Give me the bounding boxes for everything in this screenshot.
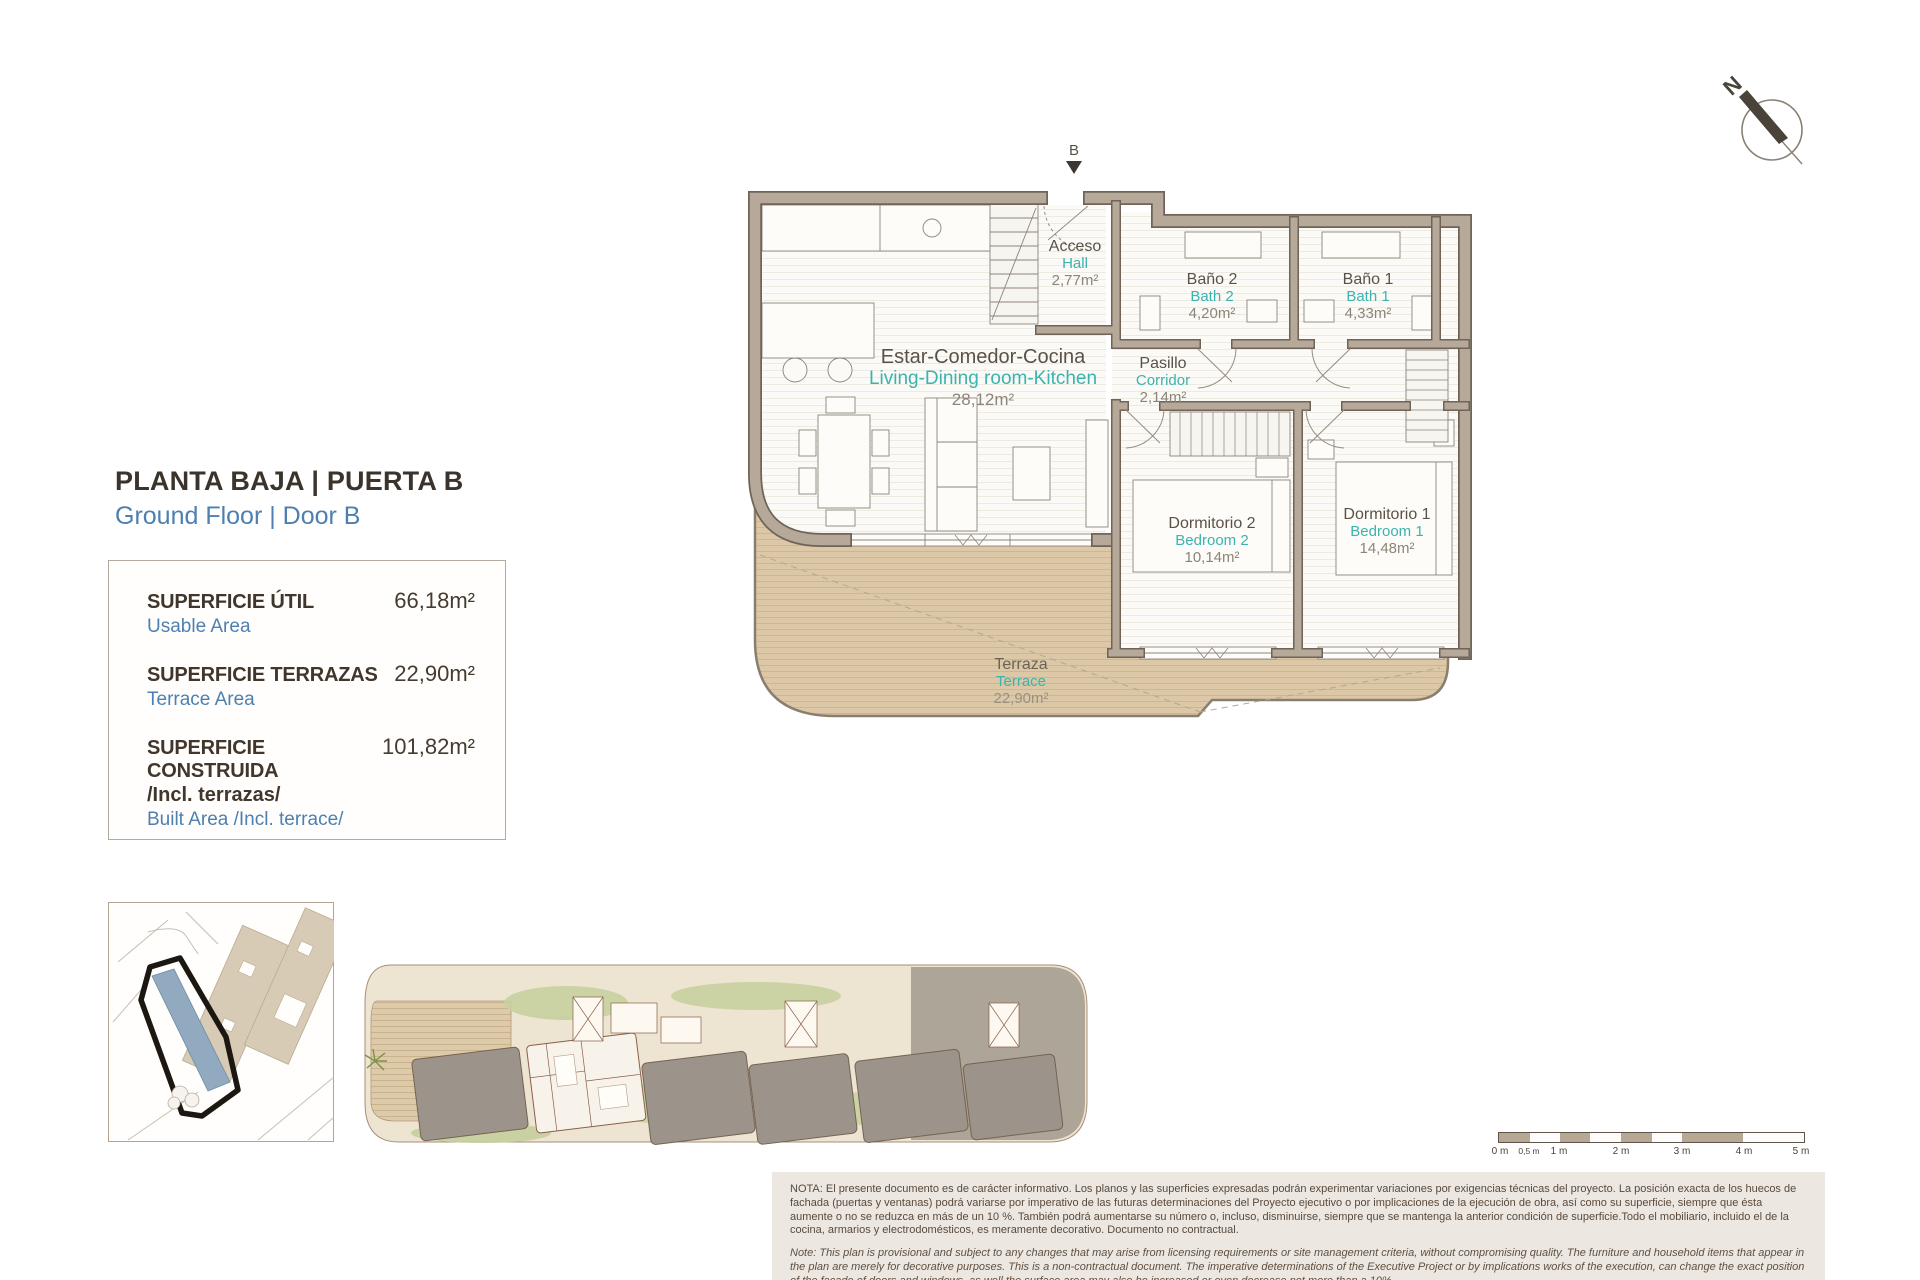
disclaimer-en: Note: This plan is provisional and subje… [790,1247,1807,1280]
room-label-bath1: Baño 1 Bath 1 4,33m² [1343,271,1394,323]
usable-area-row: SUPERFICIE ÚTIL 66,18m² Usable Area [147,588,475,638]
entrance-arrow-icon [1066,161,1082,174]
scale-bar: 0 m 0,5 m 1 m 2 m 3 m 4 m 5 m [1498,1132,1805,1162]
room-label-bedroom1: Dormitorio 1 Bedroom 1 14,48m² [1343,506,1430,558]
entrance-marker: B [1062,142,1086,174]
room-label-corridor: Pasillo Corridor 2,14m² [1136,355,1190,407]
terrace-area-label: SUPERFICIE TERRAZAS [147,664,378,687]
scale-label-2: 2 m [1613,1146,1630,1157]
built-area-label2: /Incl. terrazas/ [147,784,475,807]
wardrobe-bedroom2 [1170,412,1290,456]
disclaimer-block: NOTA: El presente documento es de caráct… [772,1172,1825,1280]
room-label-bedroom2: Dormitorio 2 Bedroom 2 10,14m² [1168,515,1255,567]
built-area-row: SUPERFICIE CONSTRUIDA 101,82m² /Incl. te… [147,734,475,831]
room-label-living: Estar-Comedor-Cocina Living-Dining room-… [869,346,1097,409]
page-title: PLANTA BAJA | PUERTA B [115,466,463,497]
room-label-hall: Acceso Hall 2,77m² [1049,238,1101,290]
surface-areas-box: SUPERFICIE ÚTIL 66,18m² Usable Area SUPE… [108,560,506,840]
site-location-map [108,902,334,1142]
title-block: PLANTA BAJA | PUERTA B Ground Floor | Do… [115,466,463,531]
room-label-bath2: Baño 2 Bath 2 4,20m² [1187,271,1238,323]
stairs [990,204,1038,324]
scale-bar-segments [1498,1132,1805,1143]
scale-label-0: 0 m [1492,1146,1509,1157]
scale-label-5: 5 m [1793,1146,1810,1157]
terrace-area-value: 22,90m² [394,661,475,687]
page-subtitle: Ground Floor | Door B [115,502,463,531]
scale-label-1: 1 m [1551,1146,1568,1157]
floor-plan-sheet: N PLANTA BAJA | PUERTA B Ground Floor | … [0,0,1920,1280]
building-ground-plan [361,961,1091,1146]
usable-area-label: SUPERFICIE ÚTIL [147,591,314,614]
floor-plan-drawing [700,140,1520,780]
terrace-area-label-en: Terrace Area [147,689,475,711]
compass-north-icon: N [1712,64,1832,184]
scale-label-3: 3 m [1674,1146,1691,1157]
highlighted-unit [526,1033,646,1134]
room-label-terrace: Terraza Terrace 22,90m² [993,656,1048,708]
built-area-value: 101,82m² [382,734,475,760]
wardrobe-bedroom1 [1406,350,1448,442]
built-area-label: SUPERFICIE CONSTRUIDA [147,737,382,783]
usable-area-value: 66,18m² [394,588,475,614]
built-area-label-en: Built Area /Incl. terrace/ [147,809,475,831]
usable-area-label-en: Usable Area [147,616,475,638]
scale-label-4: 4 m [1736,1146,1753,1157]
terrace-area-row: SUPERFICIE TERRAZAS 22,90m² Terrace Area [147,661,475,711]
scale-label-05: 0,5 m [1518,1146,1539,1156]
disclaimer-es: NOTA: El presente documento es de caráct… [790,1183,1807,1238]
entrance-letter: B [1062,142,1086,159]
